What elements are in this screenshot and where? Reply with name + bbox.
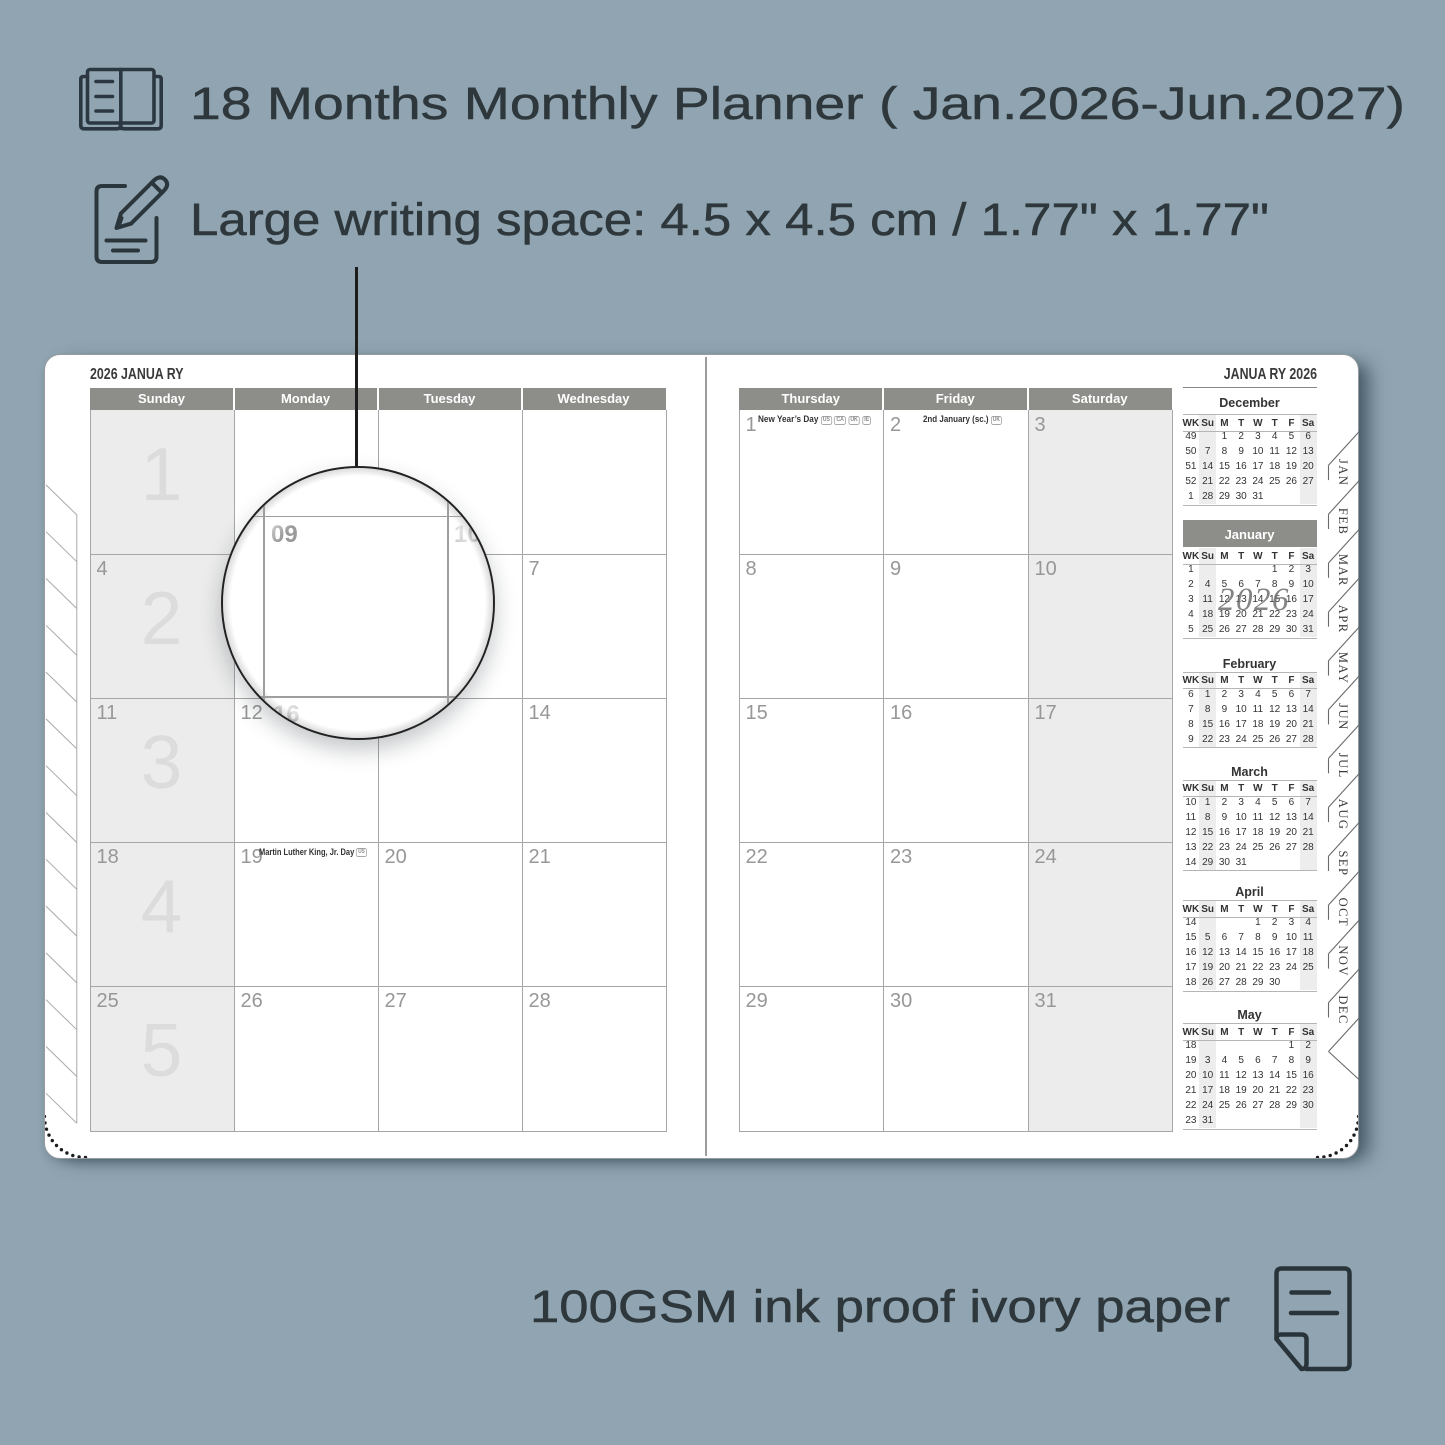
svg-text:JUL: JUL (1336, 753, 1350, 779)
svg-text:DEC: DEC (1336, 995, 1350, 1025)
svg-text:APR: APR (1336, 605, 1350, 634)
svg-text:JUN: JUN (1336, 703, 1350, 730)
svg-text:NOV: NOV (1336, 945, 1350, 977)
svg-text:SEP: SEP (1336, 850, 1350, 876)
svg-text:OCT: OCT (1336, 898, 1350, 928)
svg-text:FEB: FEB (1336, 508, 1350, 535)
svg-text:MAR: MAR (1336, 554, 1350, 587)
svg-text:MAY: MAY (1336, 652, 1350, 685)
svg-text:JAN: JAN (1336, 459, 1350, 486)
svg-text:AUG: AUG (1336, 799, 1350, 831)
